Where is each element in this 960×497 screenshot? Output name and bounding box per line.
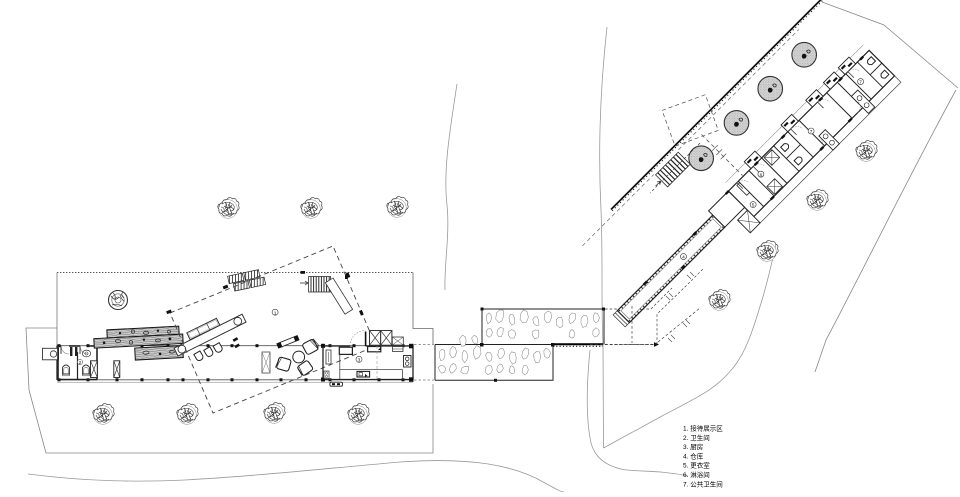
svg-text:4. 仓库: 4. 仓库 (683, 451, 704, 460)
svg-text:2. 卫生间: 2. 卫生间 (683, 433, 710, 442)
svg-text:3. 厨房: 3. 厨房 (683, 442, 703, 451)
svg-text:3: 3 (358, 357, 361, 363)
svg-text:7: 7 (810, 129, 813, 135)
svg-text:7. 公共卫生间: 7. 公共卫生间 (683, 479, 723, 488)
svg-text:1. 接待展示区: 1. 接待展示区 (683, 424, 723, 433)
svg-text:6. 淋浴间: 6. 淋浴间 (683, 470, 710, 479)
svg-text:6: 6 (760, 172, 763, 178)
svg-text:1: 1 (274, 310, 277, 316)
svg-text:4: 4 (682, 255, 685, 261)
svg-text:7: 7 (859, 80, 862, 86)
svg-text:5. 更衣室: 5. 更衣室 (683, 461, 710, 470)
svg-text:5: 5 (752, 203, 755, 209)
